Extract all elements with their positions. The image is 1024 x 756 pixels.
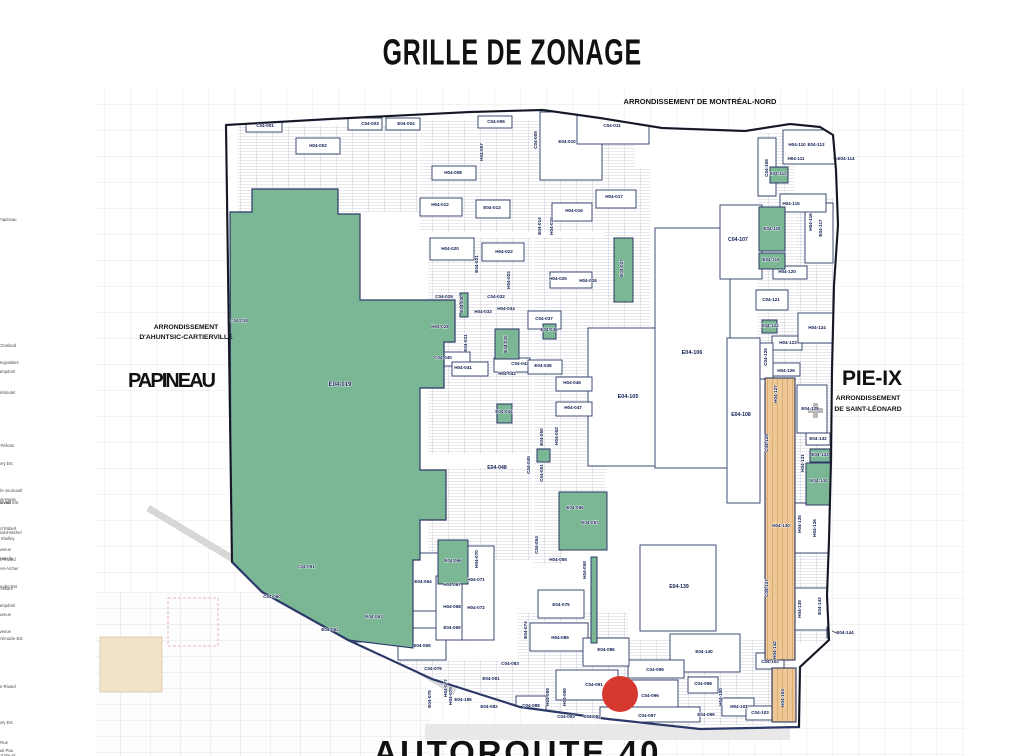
zone-code-H04-023: H04-023 — [506, 271, 511, 289]
zone-outline — [596, 190, 636, 208]
zone-code-C04-054: C04-054 — [534, 536, 539, 554]
zone-code-H04-138: H04-138 — [797, 600, 802, 618]
zone-code-E04-122: E04-122 — [761, 323, 779, 328]
zone-code-H04-012: H04-012 — [431, 202, 449, 207]
zone-code-H04-052: H04-052 — [554, 427, 559, 445]
zone-code-C04-076: C04-076 — [424, 666, 442, 671]
zone-code-E04-185: E04-185 — [454, 697, 472, 702]
zone-code-C04-137: C04-137 — [764, 579, 769, 597]
zone-code-C04-011: C04-011 — [603, 123, 621, 128]
zone-code-E04-036: E04-036 — [540, 327, 558, 332]
zone-code-H04-041: H04-041 — [454, 365, 472, 370]
zone-code-E04-132: E04-132 — [809, 436, 827, 441]
zone-code-E04-075: E04-075 — [552, 602, 570, 607]
zone-code-H04-120: H04-120 — [778, 269, 796, 274]
street-label: Rue Champdoré — [0, 603, 16, 608]
region-label: ARRONDISSEMENT DE MONTRÉAL-NORD — [624, 97, 777, 106]
zone-code-C04-037: C04-037 — [535, 316, 553, 321]
zone-code-E04-014: E04-014 — [537, 217, 542, 235]
street-label: 16e Avenue — [0, 612, 12, 617]
zone-code-C04-107: C04-107 — [728, 237, 748, 243]
zone-code-C04-032: C04-032 — [487, 294, 505, 299]
zone-code-E04-074: E04-074 — [523, 621, 528, 639]
street-label: Rue des Regrattiers — [0, 360, 19, 365]
zone-code-E04-065: E04-065 — [413, 643, 431, 648]
zone-outline — [583, 638, 629, 666]
zone-code-H04-123: H04-123 — [779, 340, 797, 345]
zone-code-C04-121: C04-121 — [762, 297, 780, 302]
green-zone — [537, 449, 550, 462]
zone-code-C04-043: C04-043 — [511, 361, 529, 366]
zone-code-C04-091: C04-091 — [585, 682, 603, 687]
zone-code-E04-019: E04-019 — [329, 382, 352, 388]
zone-code-H04-007: H04-007 — [479, 143, 484, 161]
location-marker — [602, 676, 638, 712]
page-title: GRILLE DE ZONAGE — [0, 34, 1024, 71]
zone-code-E04-063: E04-063 — [365, 614, 383, 619]
zone-code-H04-022: H04-022 — [495, 249, 513, 254]
street-label: Rue D'Hérelle — [0, 556, 14, 561]
zone-code-H04-072: H04-072 — [467, 605, 485, 610]
zone-code-E04-056: E04-056 — [566, 505, 584, 510]
zone-code-E04-048: E04-048 — [487, 465, 507, 471]
street-label: Rue Denis-Papin — [0, 497, 16, 502]
zone-code-E04-021: E04-021 — [474, 255, 479, 273]
street-label: 15e Avenue — [0, 629, 12, 634]
zone-code-H04-046: H04-046 — [563, 380, 581, 385]
zone-code-H04-020: H04-020 — [441, 246, 459, 251]
zone-code-C04-095: C04-095 — [646, 667, 664, 672]
zone-code-H04-111: H04-111 — [787, 156, 805, 161]
zone-code-C04-129: C04-129 — [764, 434, 769, 452]
zone-code-H04-002: H04-002 — [309, 143, 327, 148]
zone-code-E04-064: E04-064 — [414, 579, 432, 584]
zone-code-C04-009: C04-009 — [533, 131, 538, 149]
zone-code-E04-027: E04-027 — [619, 259, 624, 277]
zone-code-H04-101: H04-101 — [730, 704, 748, 709]
region-label: DE SAINT-LÉONARD — [834, 404, 901, 413]
zone-code-H04-042: H04-042 — [498, 371, 516, 376]
zone-code-H04-033: H04-033 — [474, 309, 492, 314]
zone-code-H04-089: H04-089 — [545, 688, 550, 706]
zone-code-H04-130: H04-130 — [772, 523, 790, 528]
zone-code-C04-088: C04-088 — [522, 703, 540, 708]
zone-code-H04-067: H04-067 — [443, 582, 461, 587]
zone-code-H04-124: H04-124 — [808, 325, 826, 330]
zone-code-E04-118: E04-118 — [763, 226, 781, 231]
zone-code-E04-113: E04-113 — [807, 142, 825, 147]
zone-code-E04-050: E04-050 — [539, 428, 544, 446]
street-label: Rue Paul-Boutet — [0, 390, 16, 395]
zone-code-E04-086: E04-086 — [597, 647, 615, 652]
zone-code-E04-045: E04-045 — [534, 363, 552, 368]
zone-code-E04-133: E04-133 — [811, 452, 829, 457]
zone-code-C04-096: C04-096 — [641, 693, 659, 698]
region-label: ARRONDISSEMENT — [836, 395, 901, 402]
zone-code-C04-060: C04-060 — [263, 594, 281, 599]
zone-code-E04-139: E04-139 — [669, 584, 689, 590]
zone-code-H04-116: H04-116 — [808, 213, 813, 231]
zone-code-H04-055: H04-055 — [549, 557, 567, 562]
street-label: Avenue Papineau — [0, 217, 17, 222]
zone-code-E04-035: E04-035 — [503, 335, 508, 353]
zone-outline — [420, 198, 462, 216]
zone-code-E04-114: E04-114 — [837, 156, 855, 161]
zone-code-C04-003: C04-003 — [361, 121, 379, 126]
zone-code-H04-090: H04-090 — [562, 688, 567, 706]
street-label: Rue Champdoré — [0, 369, 16, 374]
zone-code-E04-082: E04-082 — [480, 704, 498, 709]
zone-code-C04-103: C04-103 — [751, 710, 769, 715]
zone-code-H04-034: H04-034 — [497, 306, 515, 311]
zone-code-H04-110: H04-110 — [788, 142, 806, 147]
zoning-map-canvas: Avenue CharlandAvenue PapineauRue Champd… — [0, 0, 1024, 756]
zone-code-E04-128: E04-128 — [801, 406, 819, 411]
zone-code-H04-016: H04-016 — [565, 208, 583, 213]
zone-code-E04-108: E04-108 — [731, 412, 751, 418]
street-label: 47e Rue — [0, 740, 9, 745]
zone-code-C04-098: C04-098 — [694, 681, 712, 686]
zone-code-E04-013: E04-013 — [483, 205, 501, 210]
zone-code-E04-106: E04-106 — [682, 350, 703, 356]
zone-code-H04-115: H04-115 — [782, 201, 800, 206]
green-zone — [806, 463, 832, 505]
zone-code-C04-092: C04-092 — [583, 714, 601, 719]
zone-code-E04-078: E04-078 — [427, 690, 432, 708]
zone-code-H04-070: H04-070 — [474, 550, 479, 568]
street-label: Rue Legendre Est — [0, 584, 18, 589]
zone-code-C04-083: C04-083 — [501, 661, 519, 666]
zone-code-H04-079: H04-079 — [448, 687, 453, 705]
zone-outline — [727, 338, 760, 503]
zone-code-E04-044: E04-044 — [495, 409, 513, 414]
zone-code-C04-049: C04-049 — [526, 456, 531, 474]
region-label: AUTOROUTE 40 — [374, 734, 659, 756]
region-label: ARRONDISSEMENT — [154, 324, 219, 331]
zone-code-E04-031: E04-031 — [463, 334, 468, 352]
zone-code-C04-093: C04-093 — [557, 714, 575, 719]
street-label: Avenue Charland — [0, 343, 17, 348]
zone-code-E04-134: E04-134 — [810, 478, 828, 483]
zone-code-E04-062: E04-062 — [321, 627, 339, 632]
zone-code-E04-105: E04-105 — [618, 394, 639, 400]
zone-code-H04-085: H04-085 — [551, 635, 569, 640]
zone-code-E04-112: E04-112 — [769, 171, 787, 176]
zone-code-E04-004: E04-004 — [397, 121, 415, 126]
zone-code-C04-125: C04-125 — [763, 348, 768, 366]
zone-code-C04-108: C04-108 — [764, 159, 769, 177]
region-label: D'AHUNTSIC-CARTIERVILLE — [139, 334, 233, 341]
zone-code-C04-006: C04-006 — [487, 119, 505, 124]
zone-code-E04-119: E04-119 — [762, 257, 780, 262]
street-label: Rue Jarry Est — [0, 720, 14, 725]
zone-code-C04-001: C04-001 — [256, 123, 274, 128]
street-label: 12e Avenue — [0, 547, 12, 552]
street-label: Boulevard Crémazie Est — [0, 636, 23, 641]
zoning-map: GRILLE DE ZONAGE Avenue CharlandAvenue P… — [0, 0, 1024, 756]
zone-code-H04-028: H04-028 — [431, 324, 449, 329]
street-label: Avenue Shelley — [0, 536, 15, 541]
zone-code-H04-008: H04-008 — [444, 170, 462, 175]
zone-code-E04-030: E04-030 — [459, 295, 464, 313]
zone-code-E04-069: E04-069 — [443, 625, 461, 630]
zone-code-C04-061: C04-061 — [297, 564, 315, 569]
zone-code-C04-051: C04-051 — [539, 464, 544, 482]
region-label: PIE-IX — [842, 367, 902, 390]
street-label: Rue du Pélican — [0, 443, 15, 448]
street-label: Rue Jarry Est — [0, 461, 14, 466]
zone-code-H04-136: H04-136 — [812, 519, 817, 537]
zone-code-E04-144: E04-144 — [836, 630, 854, 635]
zone-code-E04-117: E04-117 — [818, 219, 823, 237]
zone-code-E04-140: E04-140 — [695, 649, 713, 654]
zone-code-H04-104: H04-104 — [780, 689, 785, 707]
zone-code-E04-099: E04-099 — [697, 712, 715, 717]
green-zone — [591, 557, 597, 643]
zone-code-C04-029: C04-029 — [435, 294, 453, 299]
street-label: Rue Jean-Rivard — [0, 684, 16, 689]
zone-code-C04-018: C04-018 — [230, 318, 248, 323]
zone-code-H04-131: H04-131 — [800, 454, 805, 472]
zone-code-H04-025: H04-025 — [549, 276, 567, 281]
zone-code-H04-058: H04-058 — [582, 561, 587, 579]
adjacent-tan-zone — [100, 637, 162, 692]
zone-code-E04-081: E04-081 — [482, 676, 500, 681]
zone-code-H04-047: H04-047 — [564, 405, 582, 410]
zone-code-E04-143: E04-143 — [817, 597, 822, 615]
zone-code-H04-142: H04-142 — [772, 641, 777, 659]
zone-code-H04-126: H04-126 — [777, 368, 795, 373]
street-label: Boulevard Robert — [0, 526, 17, 531]
street-label: Rue Charles-Archer — [0, 566, 19, 571]
zone-code-E04-057: E04-057 — [581, 520, 599, 525]
zone-code-H04-017: H04-017 — [605, 194, 623, 199]
zone-code-H04-127: H04-127 — [773, 385, 778, 403]
zone-code-H04-135: H04-135 — [797, 515, 802, 533]
zone-code-E04-010: E04-010 — [558, 139, 576, 144]
street-label: Rue Paul-Pau — [0, 748, 14, 753]
zone-code-H04-015: H04-015 — [549, 217, 554, 235]
zone-code-H04-026: H04-026 — [579, 278, 597, 283]
zone-code-H04-068: H04-068 — [443, 604, 461, 609]
zone-code-C04-040: C04-040 — [434, 355, 452, 360]
street-label: Avenue Émile-Journault — [0, 488, 23, 493]
zone-code-C04-097: C04-097 — [638, 713, 656, 718]
zone-code-E04-066: E04-066 — [444, 558, 462, 563]
zone-code-H04-100: H04-100 — [718, 688, 723, 706]
zone-code-H04-071: H04-071 — [467, 577, 485, 582]
zone-outline — [655, 228, 730, 468]
orange-zone — [765, 378, 795, 660]
region-label: PAPINEAU — [128, 370, 216, 392]
